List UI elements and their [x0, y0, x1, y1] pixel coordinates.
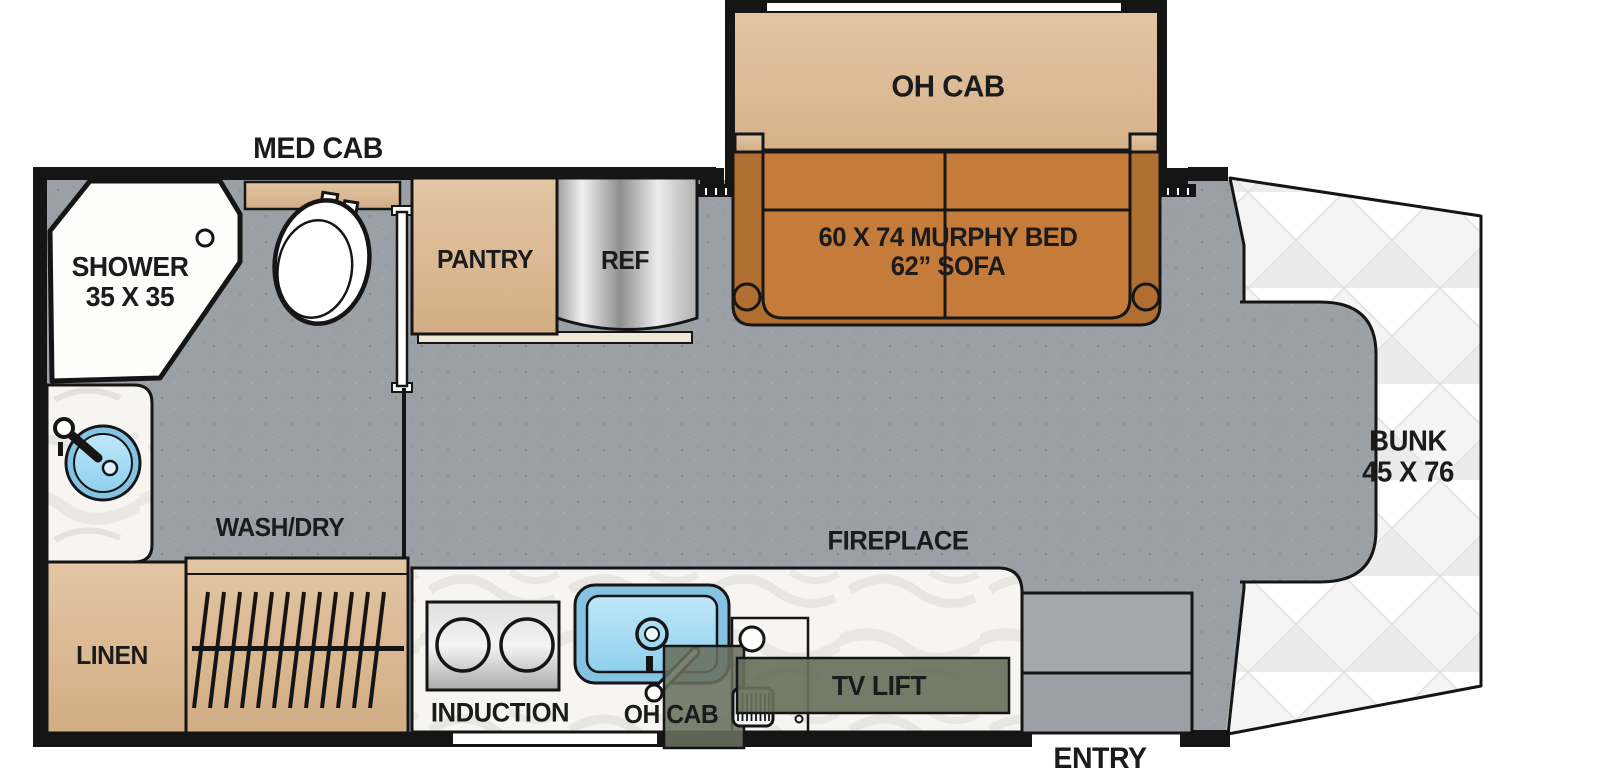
wardrobe [186, 558, 408, 733]
slideout-window [766, 2, 1122, 12]
label-oh-cab-slideout: OH CAB [891, 69, 1004, 102]
induction-cooktop [427, 602, 559, 690]
label-bunk-size: 45 X 76 [1362, 458, 1454, 489]
label-linen: LINEN [76, 641, 148, 669]
rv-floorplan: MED CAB SHOWER 35 X 35 PANTRY REF OH CAB… [0, 0, 1600, 774]
label-ref: REF [601, 246, 649, 274]
label-induction: INDUCTION [431, 698, 569, 727]
label-tv-lift: TV LIFT [832, 671, 926, 701]
label-bunk-name: BUNK [1362, 427, 1454, 458]
top-wall-stub [1188, 167, 1228, 181]
label-oh-cab-kitchen: OH CAB [624, 700, 719, 728]
label-pantry: PANTRY [437, 245, 533, 273]
label-sofa-size: 62” SOFA [819, 252, 1078, 281]
floor-tongue [1240, 302, 1376, 582]
label-bunk: BUNK 45 X 76 [1362, 427, 1454, 490]
label-entry: ENTRY [1053, 743, 1146, 774]
speaker-circle [740, 627, 764, 651]
shower-drain [197, 230, 213, 246]
hanger-rod [192, 646, 404, 651]
label-fireplace: FIREPLACE [827, 526, 968, 555]
label-med-cab: MED CAB [253, 133, 383, 165]
label-shower-name: SHOWER [72, 252, 189, 282]
label-shower: SHOWER 35 X 35 [72, 252, 189, 312]
label-wash-dry: WASH/DRY [216, 513, 344, 541]
label-murphy-bed-size: 60 X 74 MURPHY BED [819, 223, 1078, 252]
label-murphy-bed: 60 X 74 MURPHY BED 62” SOFA [819, 223, 1078, 281]
small-knob [796, 716, 803, 723]
left-wall [33, 167, 47, 747]
kitchen-window [452, 732, 658, 745]
entry-steps [1022, 593, 1192, 733]
bath-partition-wall [402, 388, 406, 568]
label-shower-size: 35 X 35 [72, 282, 189, 312]
floorplan-drawing [0, 0, 1600, 774]
